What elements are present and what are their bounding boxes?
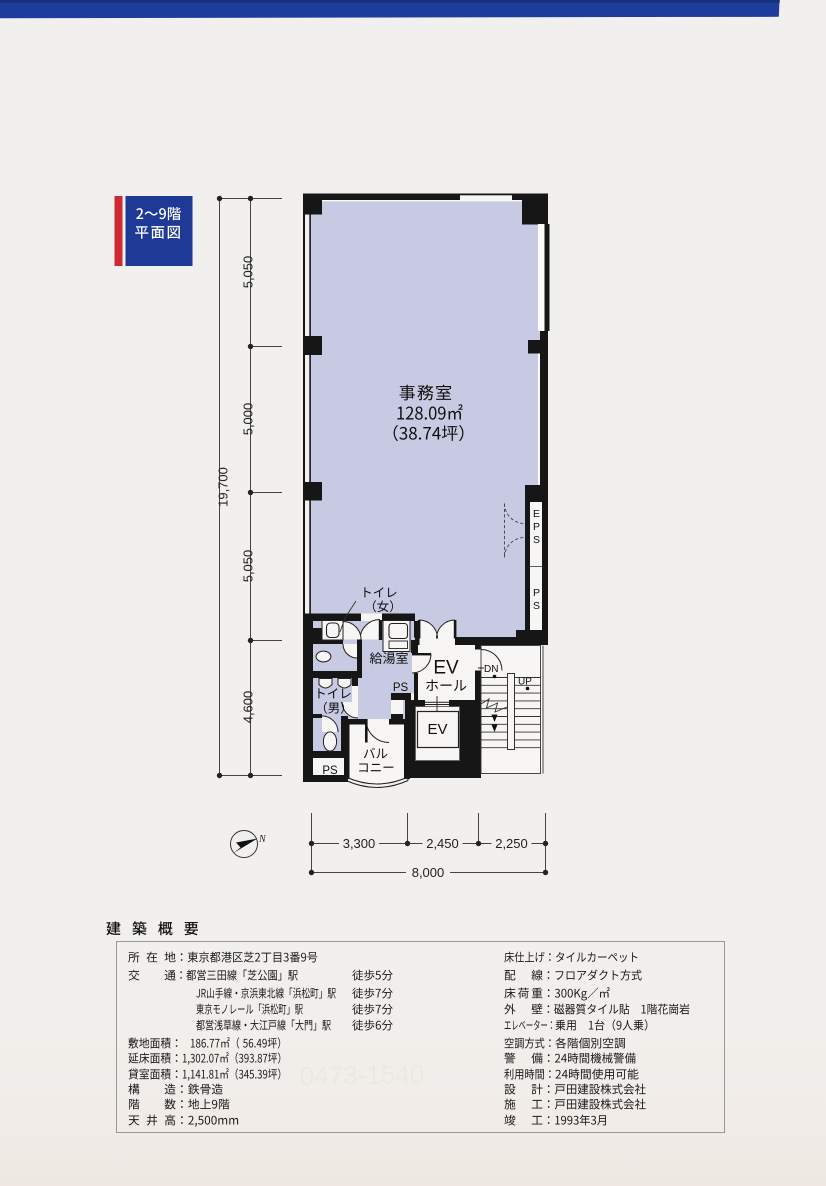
svg-text:UP: UP — [518, 677, 532, 688]
svg-text:N: N — [258, 834, 267, 845]
svg-text:5,050: 5,050 — [241, 256, 256, 289]
svg-text:PS: PS — [393, 682, 409, 694]
svg-text:3,300: 3,300 — [343, 836, 376, 851]
svg-text:5,050: 5,050 — [241, 550, 256, 583]
svg-text:8,000: 8,000 — [412, 865, 445, 880]
svg-text:P: P — [533, 521, 540, 533]
svg-text:2,250: 2,250 — [495, 836, 528, 851]
svg-text:P: P — [533, 587, 540, 599]
svg-text:PS: PS — [322, 765, 338, 777]
svg-text:EV: EV — [433, 658, 459, 679]
svg-text:2,450: 2,450 — [426, 836, 459, 851]
svg-text:DN: DN — [484, 664, 498, 675]
svg-text:5,000: 5,000 — [241, 403, 256, 436]
svg-text:EV: EV — [427, 721, 447, 738]
svg-text:19,700: 19,700 — [216, 467, 231, 507]
svg-text:S: S — [533, 600, 540, 612]
svg-text:0473-1540: 0473-1540 — [300, 1059, 425, 1091]
svg-text:4,600: 4,600 — [241, 691, 256, 724]
svg-text:E: E — [533, 508, 540, 520]
svg-text:S: S — [533, 534, 540, 546]
